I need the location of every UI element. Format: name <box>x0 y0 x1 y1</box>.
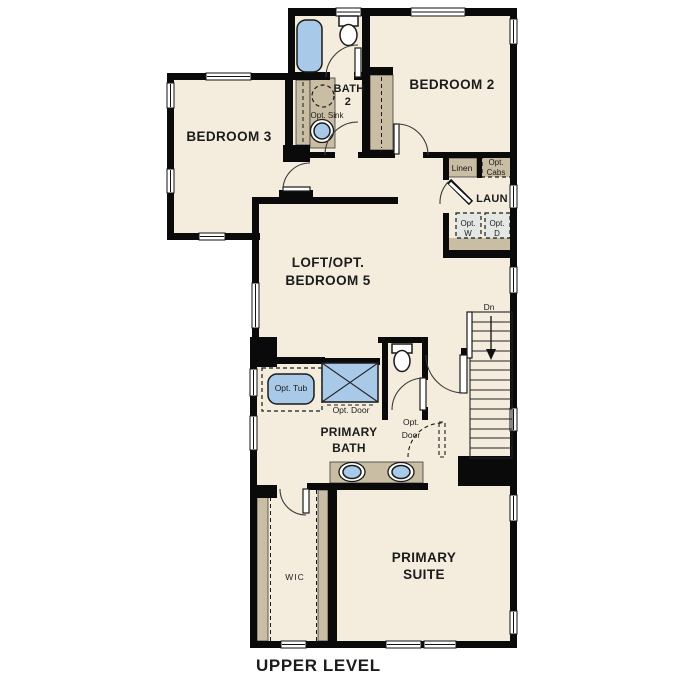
bathtub <box>297 20 322 72</box>
primary-suite-label-line2: SUITE <box>403 567 445 582</box>
wic-label: WIC <box>285 572 305 582</box>
linen-label: Linen <box>452 163 473 173</box>
loft-label-line2: BEDROOM 5 <box>285 273 370 288</box>
opt-sink-label: Opt. Sink <box>311 111 345 120</box>
vanity-sink-basin <box>392 466 410 479</box>
bath2-label-line1: BATH <box>334 83 365 95</box>
window <box>167 83 174 108</box>
plan-title: UPPER LEVEL <box>256 656 381 675</box>
toilet-bowl <box>394 351 410 372</box>
window <box>336 8 361 16</box>
opt-dryer-label-line2: D <box>494 229 500 238</box>
stairs-down-label: Dn <box>484 302 495 312</box>
window <box>510 19 517 44</box>
bedroom2-label: BEDROOM 2 <box>409 77 494 92</box>
opt-tub-label: Opt. Tub <box>275 383 308 393</box>
window <box>250 416 257 450</box>
opt-cabs-label-line2: Cabs <box>487 168 506 177</box>
wic-rod-left <box>257 490 268 641</box>
primary-bath-label-line2: BATH <box>332 441 366 455</box>
window <box>424 641 456 648</box>
toilet-bowl <box>340 25 357 46</box>
primary-suite-label-line1: PRIMARY <box>392 550 457 565</box>
bath2-label-line2: 2 <box>345 96 351 108</box>
floorplan-upper-level: BEDROOM 3 BATH 2 BEDROOM 2 LAUN LOFT/OPT… <box>0 0 687 687</box>
window <box>250 369 257 396</box>
window <box>199 233 225 240</box>
window <box>510 185 517 208</box>
window <box>411 8 465 16</box>
opt-washer-label-line1: Opt. <box>460 219 475 228</box>
window <box>510 495 517 521</box>
window <box>386 641 421 648</box>
opt-door-shower-label: Opt. Door <box>333 405 370 415</box>
primary-bath-label-line1: PRIMARY <box>321 425 378 439</box>
wic-rod-right <box>318 490 328 641</box>
bedroom3-label: BEDROOM 3 <box>186 129 271 144</box>
window <box>252 283 259 328</box>
opt-cabs-label-line1: Opt. <box>488 158 503 167</box>
vanity-sink-basin <box>343 466 361 479</box>
window <box>510 611 517 634</box>
laundry-counter <box>445 238 511 251</box>
opt-dryer-label-line1: Opt. <box>489 219 504 228</box>
window <box>206 73 251 80</box>
window <box>167 169 174 193</box>
window <box>510 267 517 293</box>
floorplan-drawing: BEDROOM 3 BATH 2 BEDROOM 2 LAUN LOFT/OPT… <box>0 0 687 687</box>
opt-door-entry-label-line1: Opt. <box>403 417 419 427</box>
opt-door-entry-label-line2: Door <box>402 430 421 440</box>
window <box>281 641 306 648</box>
sink-basin <box>314 123 330 139</box>
stair-rail <box>467 312 472 358</box>
laundry-label: LAUN <box>476 193 508 205</box>
opt-washer-label-line2: W <box>464 229 472 238</box>
loft-label-line1: LOFT/OPT. <box>292 255 365 270</box>
